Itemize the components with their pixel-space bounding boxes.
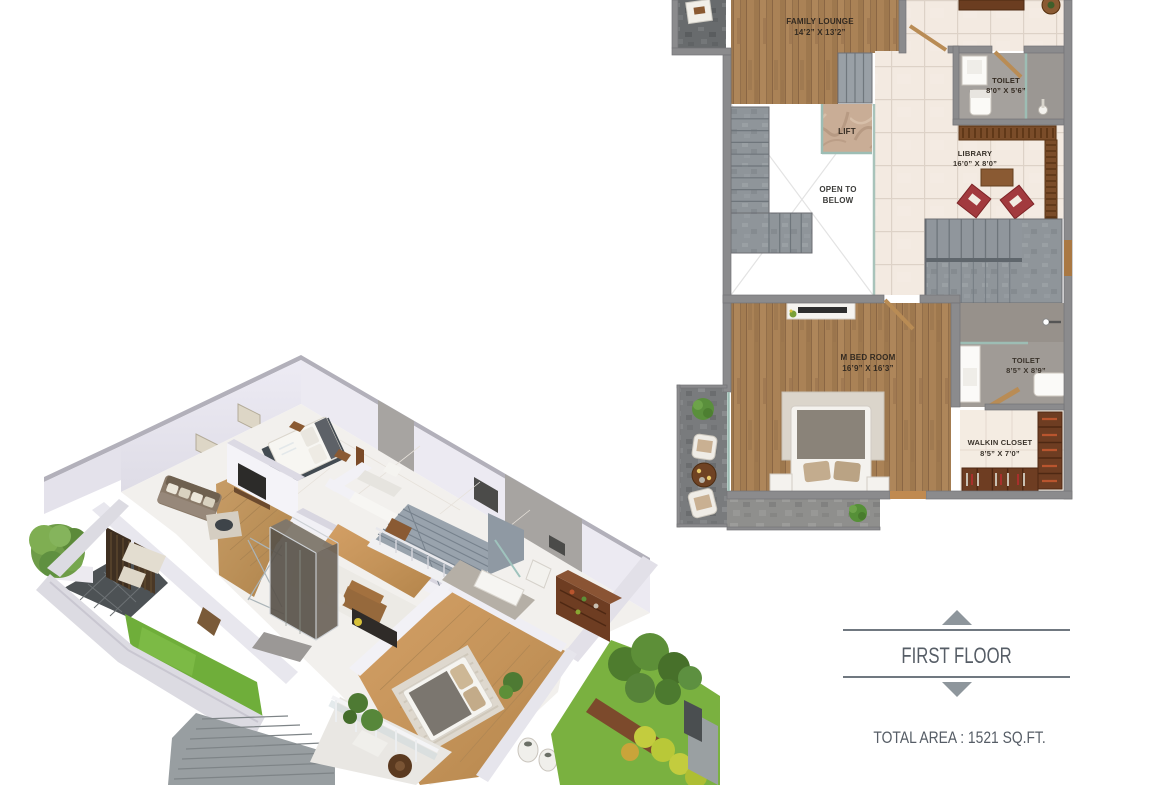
svg-text:BELOW: BELOW xyxy=(823,196,854,205)
svg-text:LIFT: LIFT xyxy=(838,127,856,136)
svg-text:WALKIN CLOSET: WALKIN CLOSET xyxy=(968,438,1033,447)
svg-text:14’2” X 13’2”: 14’2” X 13’2” xyxy=(794,28,846,37)
svg-text:OPEN TO: OPEN TO xyxy=(819,185,856,194)
svg-text:8’0” X 5’6”: 8’0” X 5’6” xyxy=(986,86,1026,95)
svg-text:16’0” X 8’0”: 16’0” X 8’0” xyxy=(953,159,997,168)
svg-text:LIBRARY: LIBRARY xyxy=(958,149,992,158)
svg-text:M BED ROOM: M BED ROOM xyxy=(841,353,896,362)
svg-text:TOILET: TOILET xyxy=(1012,356,1040,365)
svg-text:8’5” X 7’0”: 8’5” X 7’0” xyxy=(980,449,1020,458)
svg-text:16’9” X 16’3”: 16’9” X 16’3” xyxy=(842,364,894,373)
svg-text:TOILET: TOILET xyxy=(992,76,1020,85)
svg-text:8’5” X 8’9”: 8’5” X 8’9” xyxy=(1006,366,1046,375)
svg-text:FAMILY LOUNGE: FAMILY LOUNGE xyxy=(786,17,854,26)
